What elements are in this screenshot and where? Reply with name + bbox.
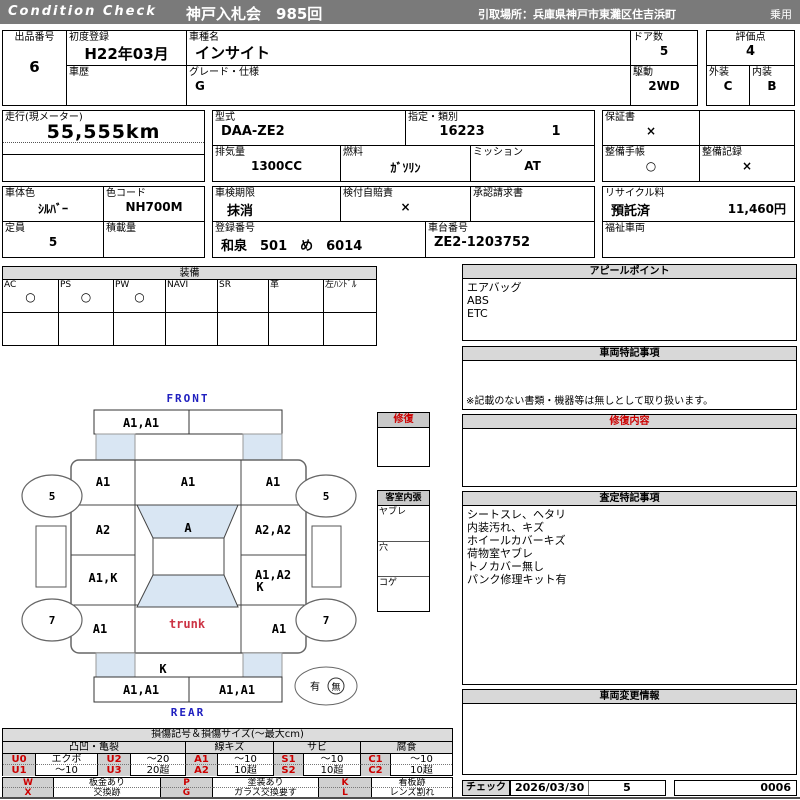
quarter-left-code: A1 [93,622,107,636]
lot-number-cell: 出品番号 6 [3,31,67,105]
legend-group-dents: 凸凹・亀裂 [3,742,186,754]
roof-shape [153,538,224,575]
color-code-cell: 色コード NH700M [104,187,204,222]
equipment-table: 装備 AC ○ PS ○ PW ○ NAVI SR 革 左ﾊﾝﾄﾞﾙ [2,266,377,346]
assessment-item-5: トノカバー無し [467,560,792,573]
wheel-front-right-code: 5 [323,490,330,503]
legend-desc-a2: 10超 [218,765,274,776]
recycle-status: 預託済 [611,200,650,219]
headlight-left-shape [96,434,135,460]
exterior-grade-value: C [707,79,749,93]
capacity-value: 5 [3,235,103,249]
load-capacity-cell: 積載量 [104,222,204,257]
legend-code-u1: U1 [3,765,36,776]
mileage-box: 走行(現メーター) 55,555km [2,110,205,182]
change-info-title: 車両変更情報 [463,690,796,704]
maintenance-record-value: × [700,159,794,173]
wheel-rear-right-code: 7 [323,614,330,627]
documents-box: 保証書 × 整備手帳 ○ 整備記録 × [602,110,795,182]
legend-desc-k: 看板跡 [372,778,452,788]
equipment-value-ps: ○ [59,291,113,304]
legend-code-c1: C1 [361,754,391,765]
legend-code-w: W [3,778,54,788]
recycle-box: リサイクル料 預託済 11,460円 福祉車両 [602,186,795,258]
welfare-vehicle-label: 福祉車両 [603,222,794,235]
class-label: 指定・類別 [406,111,594,124]
appeal-title: アピールポイント [463,265,796,279]
page-bottom-rule [0,797,800,799]
special-notes-panel: 車両特記事項 ※記載のない書類・機器等は無しとして取り扱います。 [462,346,797,410]
rear-bumper-left-code: A1,A1 [123,683,159,697]
side-sill-right-shape [312,526,341,587]
legend-desc-u3: 20超 [131,765,186,776]
equipment-label-navi: NAVI [166,280,217,291]
legend-desc-u0: エクボ [36,754,98,765]
legend-code-u3: U3 [98,765,131,776]
equipment-cell-sr: SR [218,280,269,313]
side-sill-left-shape [36,526,66,587]
recycle-fee-label: リサイクル料 [603,187,794,200]
rear-window-shape [137,575,238,607]
legend-desc-c2: 10超 [391,765,452,776]
repair-mark-legend-table: W 板金あり P 塗装あり K 看板跡 X 交換跡 G ガラス交換要す L レン… [2,777,453,799]
condition-check-sheet: Condition Check 神戸入札会 985回 引取場所：兵庫県神戸市東灘… [0,0,800,800]
vehicle-category: 乗用 [770,6,792,22]
warranty-label: 保証書 [603,111,699,124]
check-label: チェック [462,780,510,796]
chassis-number-label: 車台番号 [426,222,594,235]
interior-grade-label: 内装 [750,66,794,79]
equipment-label-lhd: 左ﾊﾝﾄﾞﾙ [324,280,376,291]
history-label: 車歴 [67,66,186,79]
legend-code-s2: S2 [274,765,304,776]
serial-number: 0006 [674,780,797,796]
displacement-value: 1300CC [213,159,340,173]
model-name-cell: 車種名 インサイト [187,31,631,66]
appeal-item-1: エアバッグ [467,281,792,294]
legend-desc-c1: 〜10 [391,754,452,765]
welfare-vehicle-cell: 福祉車両 [603,222,794,257]
class-value-2: 1 [552,124,561,139]
equipment-empty-1 [3,313,59,345]
recycle-fee-value: 11,460円 [728,200,786,219]
doors-value: 5 [631,44,697,58]
brand-title: Condition Check [8,4,157,19]
score-label: 評価点 [707,31,794,44]
legend-code-p: P [161,778,213,788]
equipment-label-sr: SR [218,280,268,291]
score-cell: 評価点 4 [707,31,794,66]
check-count: 5 [589,781,665,795]
insurance-value: × [341,200,470,214]
fuel-value: ｶﾞｿﾘﾝ [341,159,470,176]
insurance-cell: 検付自賠責 × [341,187,471,222]
fender-left-code: A1 [96,475,110,489]
taillight-left-shape [96,653,135,677]
documents-empty-cell [700,111,794,146]
drive-value: 2WD [631,79,697,93]
equipment-cell-leather: 革 [269,280,324,313]
equipment-label-leather: 革 [269,280,323,291]
registration-number-value: 和泉 501 め 6014 [213,235,425,254]
legend-group-rust: サビ [274,742,361,754]
drive-cell: 駆動 2WD [631,66,697,105]
color-box: 車体色 ｼﾙﾊﾞｰ 色コード NH700M 定員 5 積載量 [2,186,205,258]
registration-number-label: 登録番号 [213,222,425,235]
inspection-expiry-value: 抹消 [213,200,340,219]
legend-code-u2: U2 [98,754,131,765]
score-value: 4 [707,44,794,59]
first-registration-value: H22年03月 [67,43,186,64]
front-bumper-left-code: A1,A1 [123,416,159,430]
damage-legend-table: 損傷記号＆損傷サイズ(〜最大cm) 凸凹・亀裂 線キズ サビ 腐食 U0 エクボ… [2,728,453,776]
inspection-expiry-label: 車検期限 [213,187,340,200]
legend-desc-p: 塗装あり [213,778,319,788]
equipment-value-ac: ○ [3,291,58,304]
special-notes-title: 車両特記事項 [463,347,796,361]
headlight-right-shape [243,434,282,460]
trunk-label: trunk [169,617,206,631]
recycle-fee-cell: リサイクル料 預託済 11,460円 [603,187,794,222]
spare-tire-indicator-shape [295,667,357,705]
cabin-lining-title: 客室内張 [378,491,429,506]
door-rear-left-code: A1,K [89,571,119,585]
appeal-item-2: ABS [467,294,792,307]
change-info-panel: 車両変更情報 [462,689,797,775]
cabin-lining-box: 客室内張 ヤブレ 穴 コゲ [377,490,430,612]
rear-bumper-right-code: A1,A1 [219,683,255,697]
check-date: 2026/03/30 [511,781,589,795]
wheel-rear-left-code: 7 [49,614,56,627]
appeal-panel: アピールポイント エアバッグ ABS ETC [462,264,797,341]
chassis-number-cell: 車台番号 ZE2-1203752 [426,222,594,257]
fuel-cell: 燃料 ｶﾞｿﾘﾝ [341,146,471,181]
inspection-expiry-cell: 車検期限 抹消 [213,187,341,222]
fender-right-code: A1 [266,475,280,489]
assessment-panel: 査定特記事項 シートスレ、ヘタリ 内装汚れ、キズ ホイールカバーキズ 荷物室ヤブ… [462,491,797,685]
registration-box: 車検期限 抹消 検付自賠責 × 承認請求書 登録番号 和泉 501 め 6014… [212,186,595,258]
legend-desc-a1: 〜10 [218,754,274,765]
grade-value: G [187,79,630,93]
doors-cell: ドア数 5 [631,31,697,66]
door-rear-right-code-2: K [256,580,264,594]
assessment-item-2: 内装汚れ、キズ [467,521,792,534]
repair-content-panel: 修復内容 [462,414,797,487]
class-cell: 指定・類別 16223 1 [406,111,594,146]
cabin-row-tear: ヤブレ [378,506,429,542]
identity-box: 出品番号 6 初度登録 H22年03月 車歴 車種名 インサイト グレード・仕様… [2,30,698,106]
grade-label: グレード・仕様 [187,66,630,79]
windshield-code: A [184,521,192,535]
warranty-cell: 保証書 × [603,111,700,146]
assessment-item-6: パンク修理キット有 [467,573,792,586]
legend-desc-s2: 10超 [304,765,361,776]
warranty-value: × [603,124,699,138]
fuel-label: 燃料 [341,146,470,159]
body-color-cell: 車体色 ｼﾙﾊﾞｰ [3,187,104,222]
repair-mini-title: 修復 [378,413,429,428]
door-front-right-code: A2,A2 [255,523,291,537]
lot-number-value: 6 [3,58,66,76]
load-capacity-label: 積載量 [104,222,204,235]
equipment-cell-navi: NAVI [166,280,218,313]
equipment-empty-4 [166,313,218,345]
assessment-title: 査定特記事項 [463,492,796,506]
approval-request-label: 承認請求書 [471,187,594,200]
legend-group-scratch: 線キズ [186,742,274,754]
history-cell: 車歴 [67,66,187,105]
spare-present-label: 有 [310,680,320,693]
repair-mini-box: 修復 [377,412,430,467]
spare-absent-label: 無 [331,681,340,693]
transmission-value: AT [471,159,594,173]
displacement-cell: 排気量 1300CC [213,146,341,181]
rear-panel-code: K [159,662,167,676]
class-value-1: 16223 [439,124,484,139]
lot-number-label: 出品番号 [3,31,66,44]
registration-number-cell: 登録番号 和泉 501 め 6014 [213,222,426,257]
check-box: 2026/03/30 5 [510,780,666,796]
wheel-front-left-code: 5 [49,490,56,503]
grade-cell: グレード・仕様 G [187,66,631,105]
displacement-label: 排気量 [213,146,340,159]
body-color-label: 車体色 [3,187,103,200]
transmission-cell: ミッション AT [471,146,594,181]
first-registration-cell: 初度登録 H22年03月 [67,31,187,66]
door-front-left-code: A2 [96,523,110,537]
taillight-right-shape [243,653,282,677]
assessment-item-3: ホイールカバーキズ [467,534,792,547]
header-bar: Condition Check 神戸入札会 985回 引取場所：兵庫県神戸市東灘… [0,0,800,24]
legend-code-c2: C2 [361,765,391,776]
legend-desc-s1: 〜10 [304,754,361,765]
appeal-item-3: ETC [467,307,792,320]
equipment-empty-3 [114,313,166,345]
approval-request-cell: 承認請求書 [471,187,594,222]
doors-label: ドア数 [631,31,697,44]
equipment-cell-lhd: 左ﾊﾝﾄﾞﾙ [324,280,376,313]
interior-grade-cell: 内装 B [750,66,794,105]
model-code-value: DAA-ZE2 [213,124,405,139]
model-code-cell: 型式 DAA-ZE2 [213,111,406,146]
mileage-value: 55,555km [3,121,204,143]
model-name-value: インサイト [187,42,630,63]
pickup-location: 引取場所：兵庫県神戸市東灘区住吉浜町 [478,6,676,22]
mileage-solid-divider [3,154,204,181]
rear-label: REAR [171,706,206,719]
spec-box: 型式 DAA-ZE2 指定・類別 16223 1 排気量 1300CC 燃料 ｶ… [212,110,595,182]
legend-desc-u1: 〜10 [36,765,98,776]
equipment-cell-ps: PS ○ [59,280,114,313]
legend-code-k: K [319,778,372,788]
equipment-title: 装備 [3,267,376,280]
maintenance-record-label: 整備記録 [700,146,794,159]
legend-code-a2: A2 [186,765,218,776]
drive-label: 駆動 [631,66,697,79]
maintenance-book-value: ○ [603,159,699,173]
exterior-grade-label: 外装 [707,66,749,79]
equipment-empty-2 [59,313,114,345]
exterior-grade-cell: 外装 C [707,66,750,105]
legend-desc-w: 板金あり [54,778,161,788]
special-notes-disclaimer: ※記載のない書類・機器等は無しとして取り扱います。 [466,392,713,407]
maintenance-book-label: 整備手帳 [603,146,699,159]
transmission-label: ミッション [471,146,594,159]
interior-grade-value: B [750,79,794,93]
quarter-right-code: A1 [272,622,286,636]
cabin-row-hole: 穴 [378,542,429,577]
assessment-item-1: シートスレ、ヘタリ [467,508,792,521]
auction-title: 神戸入札会 985回 [186,3,322,24]
equipment-cell-ac: AC ○ [3,280,59,313]
maintenance-book-cell: 整備手帳 ○ [603,146,700,181]
legend-code-s1: S1 [274,754,304,765]
repair-content-title: 修復内容 [463,415,796,429]
cabin-row-burn: コゲ [378,577,429,612]
evaluation-box: 評価点 4 外装 C 内装 B [706,30,795,106]
insurance-label: 検付自賠責 [341,187,470,200]
color-code-label: 色コード [104,187,204,200]
legend-group-corrosion: 腐食 [361,742,452,754]
equipment-empty-6 [269,313,324,345]
damage-legend-title: 損傷記号＆損傷サイズ(〜最大cm) [3,729,452,742]
mileage-dotted-divider [3,142,204,154]
maintenance-record-cell: 整備記録 × [700,146,794,181]
legend-code-a1: A1 [186,754,218,765]
chassis-number-value: ZE2-1203752 [426,235,594,250]
legend-desc-u2: 〜20 [131,754,186,765]
equipment-value-pw: ○ [114,291,165,304]
capacity-label: 定員 [3,222,103,235]
equipment-empty-5 [218,313,269,345]
model-code-label: 型式 [213,111,405,124]
hood-code: A1 [181,475,195,489]
capacity-cell: 定員 5 [3,222,104,257]
color-code-value: NH700M [104,200,204,214]
equipment-cell-pw: PW ○ [114,280,166,313]
legend-code-u0: U0 [3,754,36,765]
body-color-value: ｼﾙﾊﾞｰ [3,200,103,217]
assessment-item-4: 荷物室ヤブレ [467,547,792,560]
front-label: FRONT [166,392,209,405]
